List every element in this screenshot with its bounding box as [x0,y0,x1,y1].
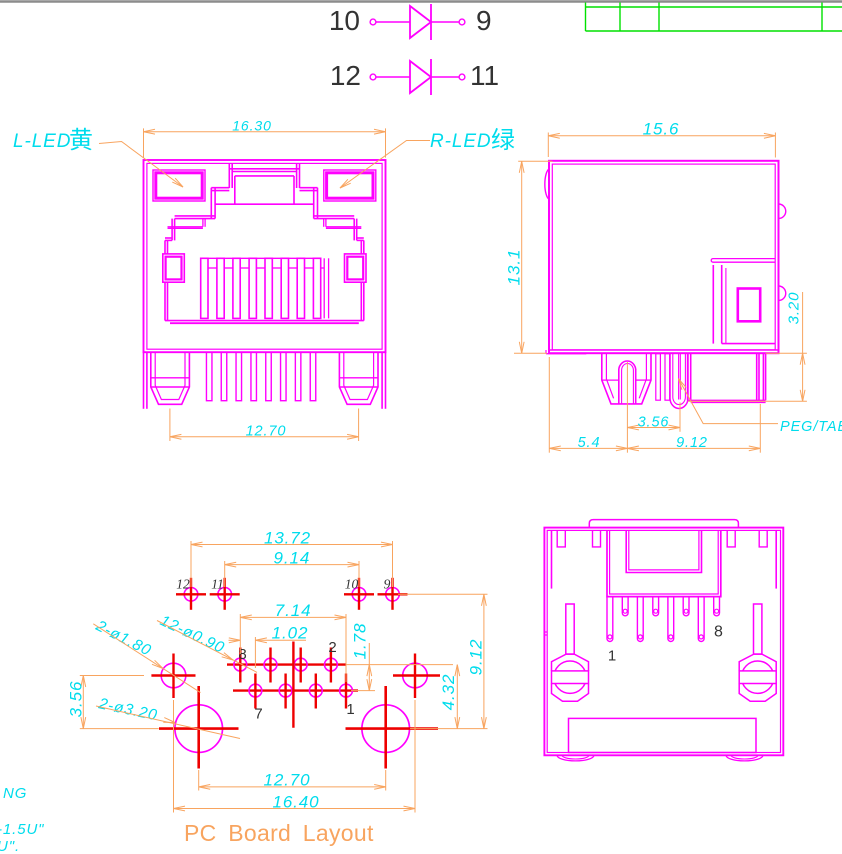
svg-text:10: 10 [345,577,359,592]
svg-text:PEG/TAB: PEG/TAB [780,419,842,435]
svg-text:2-ø3.20: 2-ø3.20 [96,695,159,724]
svg-text:15.6: 15.6 [643,120,680,139]
svg-text:PC Board Layout: PC Board Layout [184,820,374,846]
svg-text:9.12: 9.12 [676,435,708,451]
svg-text:8: 8 [714,624,723,641]
svg-text:1: 1 [346,701,354,718]
svg-text:3.56: 3.56 [67,681,86,718]
svg-text:NG: NG [3,785,27,802]
svg-text:2: 2 [328,639,336,656]
svg-text:2-ø1.80: 2-ø1.80 [92,617,154,660]
svg-text:12: 12 [330,60,361,91]
svg-text:9.12: 9.12 [467,639,486,676]
svg-text:绿: 绿 [491,127,515,154]
svg-text:12.70: 12.70 [263,771,310,790]
svg-text:12.70: 12.70 [246,424,287,440]
svg-text:L-LED: L-LED [13,131,71,152]
svg-text:16.40: 16.40 [272,792,319,811]
svg-text:1.02: 1.02 [272,624,309,643]
svg-text:R-LED: R-LED [430,131,492,152]
svg-text:10: 10 [329,5,360,36]
svg-text:16.30: 16.30 [232,118,272,134]
svg-text:11: 11 [470,60,499,91]
svg-text:3.56: 3.56 [638,414,670,430]
svg-text:9: 9 [476,5,492,36]
svg-text:黄: 黄 [69,127,93,154]
svg-text:12-ø0.90: 12-ø0.90 [157,612,227,657]
svg-text:U".: U". [0,838,20,854]
svg-text:13.1: 13.1 [505,249,524,286]
svg-text:9: 9 [384,577,391,592]
svg-text:13.72: 13.72 [264,528,311,547]
svg-text:9.14: 9.14 [274,548,311,567]
svg-text:12: 12 [176,577,190,592]
svg-text:1: 1 [608,648,616,665]
svg-text:4.32: 4.32 [439,674,458,711]
svg-text:7.14: 7.14 [275,601,312,620]
svg-text:1.78: 1.78 [351,623,370,660]
svg-text:3.20: 3.20 [786,292,803,325]
svg-text:8: 8 [238,646,246,663]
svg-text:-1.5U": -1.5U" [0,821,44,838]
svg-text:5.4: 5.4 [578,435,601,451]
svg-text:11: 11 [211,577,224,592]
svg-text:7: 7 [254,706,262,723]
